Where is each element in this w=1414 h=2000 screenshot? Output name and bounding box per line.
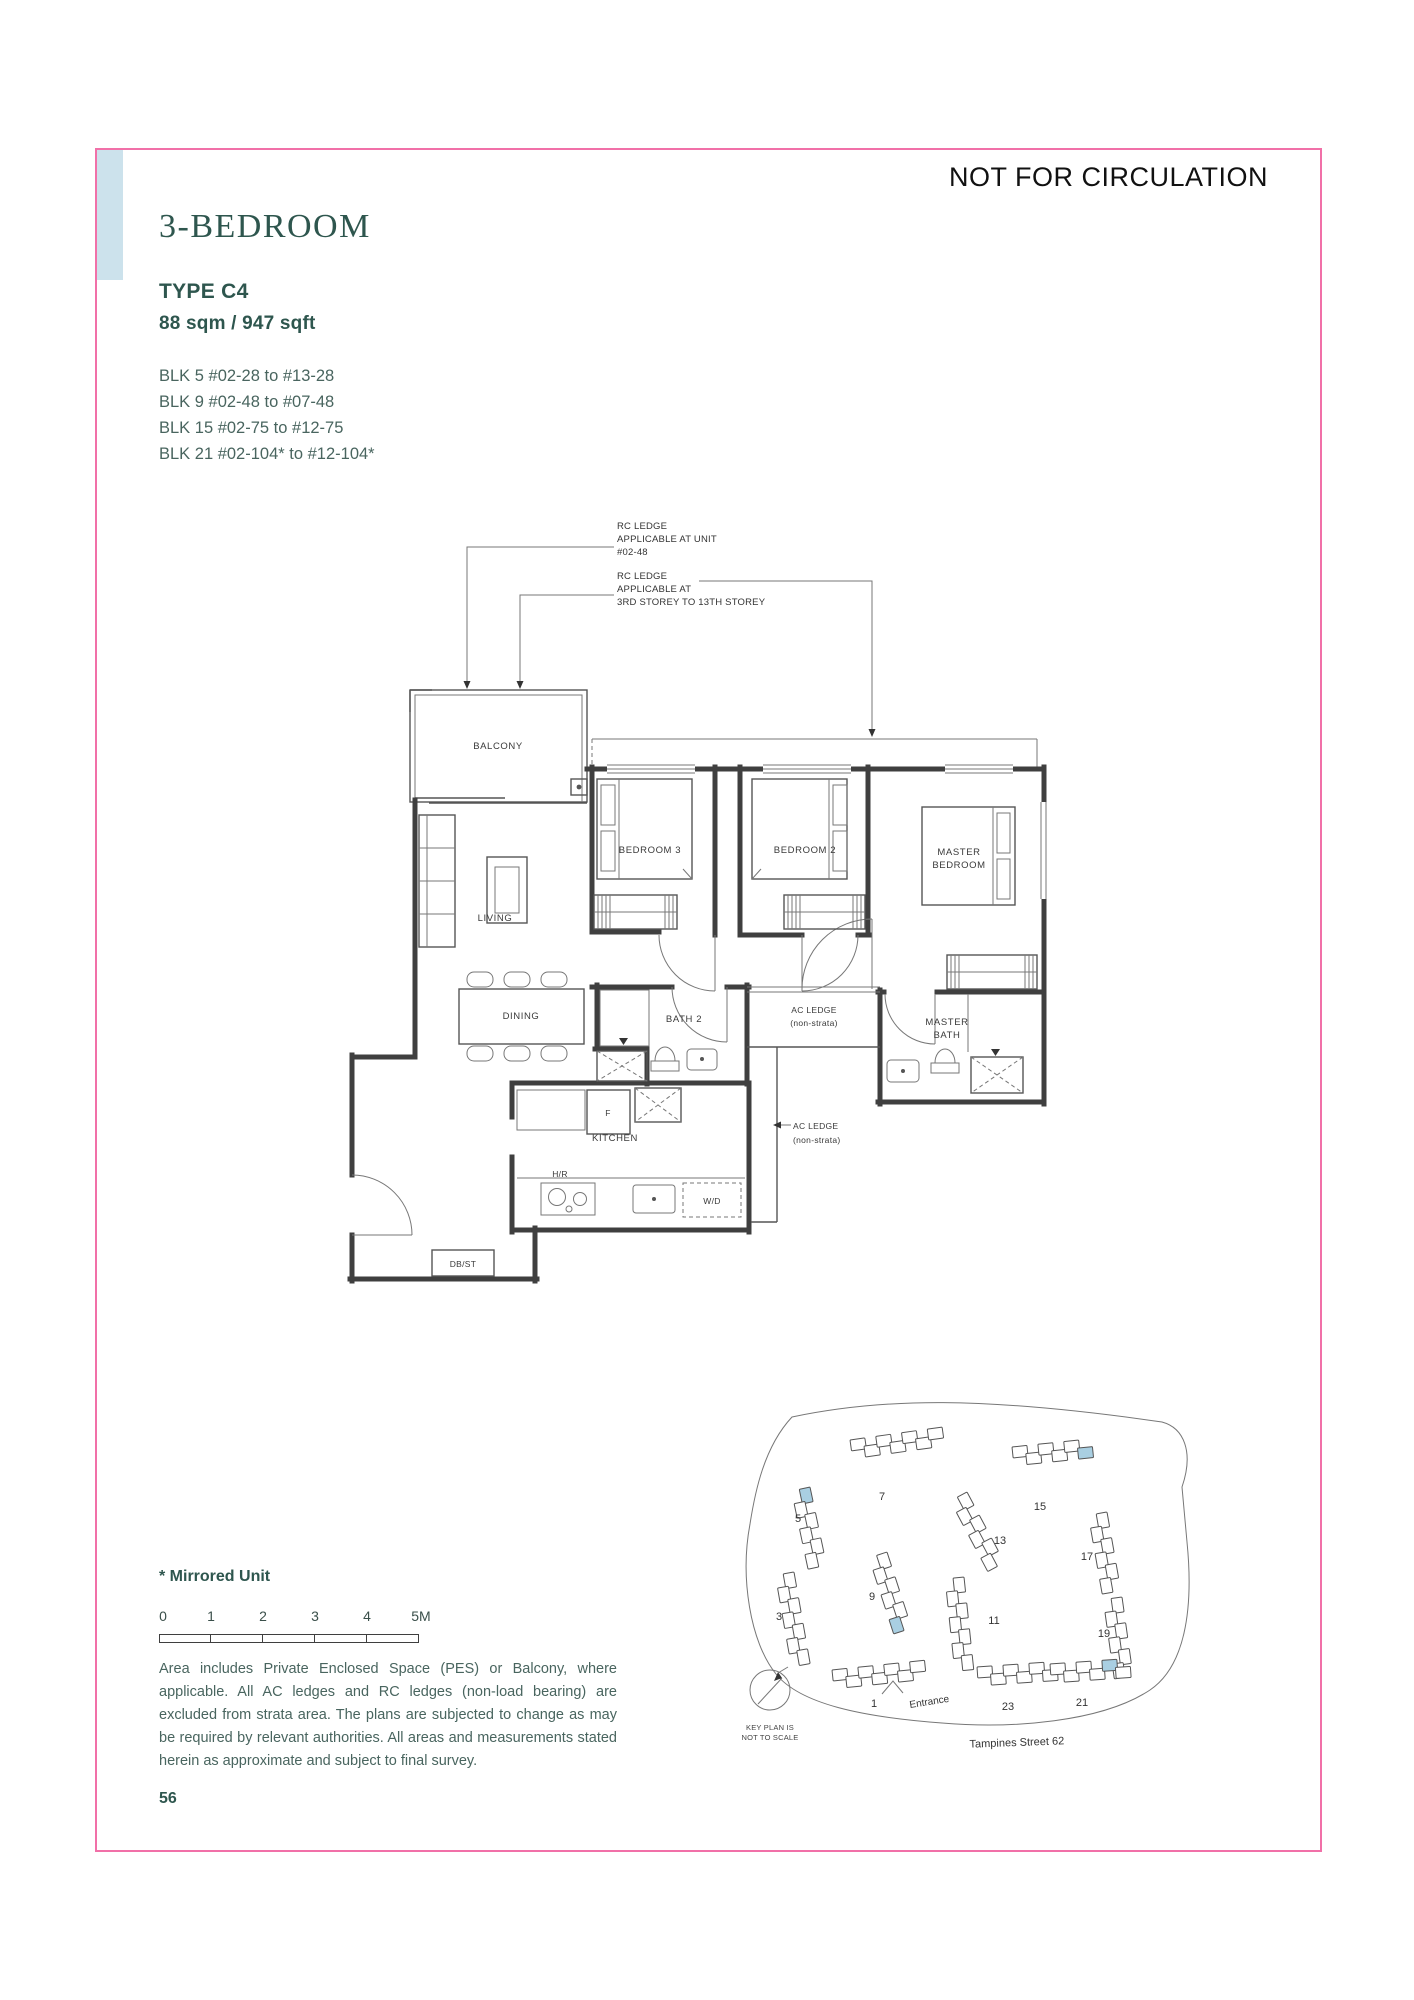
building-unit [927,1427,943,1440]
scale-label: 5M [411,1608,430,1624]
floor-plan-drawing: BALCONY [347,517,1047,1307]
keyplan-note-2: NOT TO SCALE [741,1733,798,1742]
building-unit [792,1623,805,1640]
block-number-label: 11 [988,1615,999,1627]
db-st: DB/ST [432,1250,494,1276]
building-unit [885,1577,900,1595]
block-number-label: 3 [776,1611,782,1623]
scale-label: 0 [159,1608,167,1624]
fridge-label: F [605,1108,611,1118]
living-label: LIVING [478,913,513,924]
dbst-label: DB/ST [450,1259,477,1269]
building-unit [805,1512,819,1529]
scale-label: 4 [363,1608,371,1624]
highlighted-unit [799,1487,813,1504]
key-plan-drawing: 7155131791131912321 KEY PLAN IS NOT TO S… [682,1392,1242,1764]
living-room: LIVING [419,815,527,947]
building-unit [1101,1538,1114,1555]
ac-ledge-2-label-1: AC LEDGE [793,1121,838,1131]
building-unit [797,1649,810,1666]
master-bedroom-label-1: MASTER [937,847,980,858]
block-cluster [950,1492,1004,1572]
ac-ledge-2: AC LEDGE (non-strata) [751,1047,841,1222]
master-bath-label-1: MASTER [925,1017,968,1028]
bath2-label: BATH 2 [666,1014,702,1025]
scale-label: 3 [311,1608,319,1624]
block-number-label: 9 [869,1591,875,1603]
disclaimer-text: Area includes Private Enclosed Space (PE… [159,1658,617,1773]
block-cluster [1088,1512,1121,1594]
block-cluster [945,1577,974,1671]
block-number-label: 15 [1034,1501,1046,1513]
block-cluster [977,1661,1058,1686]
scale-bar-segments [159,1634,419,1643]
block-cluster [1012,1439,1094,1466]
building-unit [783,1572,796,1589]
corner-accent-bar [97,150,123,280]
block-number-label: 5 [795,1513,801,1525]
block-number-label: 21 [1076,1697,1088,1709]
floor-plan: BALCONY [347,517,1047,1307]
building-unit [805,1552,819,1569]
street-label: Tampines Street 62 [969,1735,1064,1750]
block-number-label: 7 [879,1491,885,1503]
door-swings [352,919,935,1235]
scale-segment [159,1634,211,1643]
building-unit [877,1552,892,1570]
block-number-label: 1 [871,1698,877,1710]
master-bath: MASTER BATH [887,994,1023,1093]
block-cluster [850,1427,945,1459]
block-cluster [1050,1658,1131,1683]
block-cluster [869,1552,912,1634]
keyplan-clusters: 7155131791131912321 [775,1427,1133,1713]
building-unit [788,1598,801,1615]
building-unit [810,1538,824,1555]
bedroom3-label: BEDROOM 3 [619,845,681,856]
building-unit [981,1553,998,1571]
rc-leader-lines [464,547,876,737]
block-line: BLK 15 #02-75 to #12-75 [159,415,375,441]
building-unit [1100,1577,1113,1594]
block-number-label: 13 [994,1535,1006,1547]
block-number-label: 17 [1081,1551,1093,1563]
page-title: 3-BEDROOM [159,208,371,246]
bedroom2-label: BEDROOM 2 [774,845,836,856]
key-plan: 7155131791131912321 KEY PLAN IS NOT TO S… [682,1392,1242,1764]
ac-ledge-1-label-1: AC LEDGE [791,1005,836,1015]
master-bedroom-label-2: BEDROOM [932,860,985,871]
scale-label: 2 [259,1608,267,1624]
scale-segment [367,1634,419,1643]
hob-label: H/R [552,1169,568,1179]
scale-bar-labels: 0 1 2 3 4 5M [159,1608,439,1628]
bath-2: BATH 2 [600,990,717,1071]
block-number-label: 19 [1098,1628,1110,1640]
building-unit [893,1601,908,1619]
page-canvas: NOT FOR CIRCULATION 3-BEDROOM TYPE C4 88… [0,0,1414,2000]
dining-label: DINING [503,1011,540,1022]
entrance-label: Entrance [909,1694,951,1711]
unit-type-label: TYPE C4 [159,280,249,304]
entrance-marker: Entrance [882,1681,950,1711]
scale-segment [263,1634,315,1643]
block-listing: BLK 5 #02-28 to #13-28 BLK 9 #02-48 to #… [159,363,375,467]
washer-dryer-label: W/D [703,1196,720,1206]
scale-label: 1 [207,1608,215,1624]
kitchen-label: KITCHEN [592,1133,638,1144]
building-unit [1115,1666,1131,1678]
kitchen: F H/R W/D KITCHEN [517,1090,745,1217]
unit-area-label: 88 sqm / 947 sqft [159,313,316,335]
balcony-label: BALCONY [473,741,523,752]
not-for-circulation-stamp: NOT FOR CIRCULATION [949,162,1268,193]
mirrored-unit-note: * Mirrored Unit [159,1568,270,1586]
highlighted-unit [889,1616,904,1634]
compass-icon [750,1667,790,1710]
ac-ledge-2-label-2: (non-strata) [793,1135,841,1145]
floorplan-page: NOT FOR CIRCULATION 3-BEDROOM TYPE C4 88… [95,148,1322,1852]
highlighted-unit [1077,1447,1093,1460]
building-unit [961,1655,974,1671]
page-number: 56 [159,1790,177,1808]
block-line: BLK 5 #02-28 to #13-28 [159,363,375,389]
bedroom-2: BEDROOM 2 [752,779,865,929]
block-line: BLK 21 #02-104* to #12-104* [159,441,375,467]
scale-segment [315,1634,367,1643]
block-line: BLK 9 #02-48 to #07-48 [159,389,375,415]
bedroom-3: BEDROOM 3 [594,779,692,929]
master-bath-label-2: BATH [933,1030,960,1041]
dining-area: DINING [459,972,584,1061]
keyplan-note-1: KEY PLAN IS [746,1723,794,1732]
block-number-label: 23 [1002,1701,1014,1713]
ac-ledge-1: AC LEDGE (non-strata) [747,987,880,1047]
scale-segment [211,1634,263,1643]
building-unit [910,1660,926,1673]
block-cluster [832,1660,926,1689]
balcony: BALCONY [410,690,587,803]
building-unit [1096,1512,1109,1529]
building-unit [1105,1563,1118,1580]
master-bedroom: MASTER BEDROOM [922,807,1037,989]
scale-bar: 0 1 2 3 4 5M [159,1608,439,1654]
ac-ledge-1-label-2: (non-strata) [790,1018,838,1028]
block-cluster [791,1487,826,1569]
